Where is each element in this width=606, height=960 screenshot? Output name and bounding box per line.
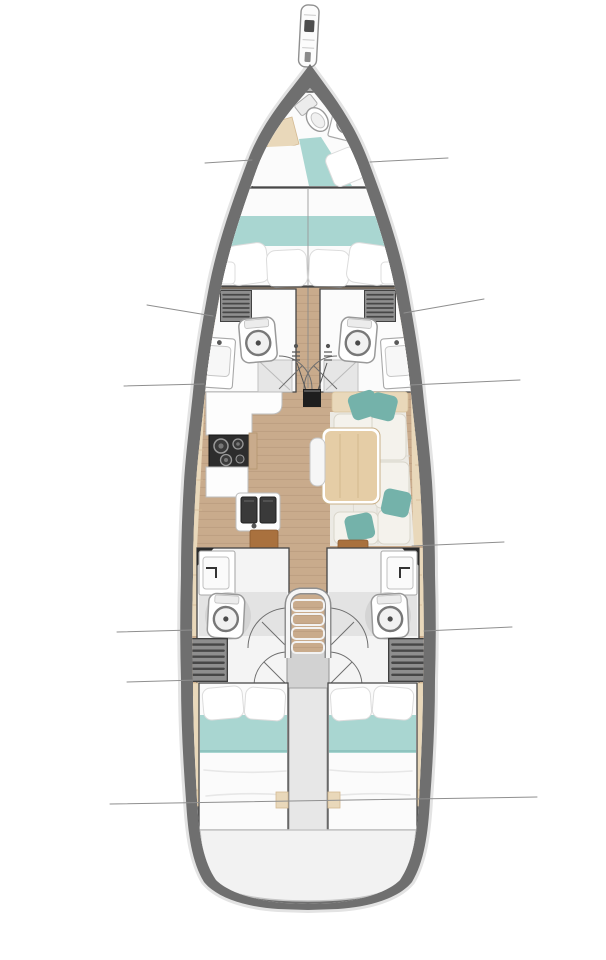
louvered-locker [220,290,251,321]
salon-table [322,428,380,504]
toilet [338,317,378,364]
toilet [238,317,278,364]
louvered-locker [364,290,395,321]
bowsprit [298,5,319,68]
port-aft-cabin [186,683,288,830]
starboard-aft-cabin [328,683,430,830]
deck-plan-page [0,0,606,960]
swim-platform [200,830,416,901]
toilet [207,593,245,639]
wash-basin [199,551,235,595]
deck-plan [0,0,606,960]
aisle-stool [310,438,325,486]
cockpit-column [289,688,327,832]
anchor-fitting [304,20,315,33]
wash-basin [381,551,417,595]
mast-foot [303,389,321,407]
toilet [371,593,409,639]
double-sink [236,493,280,531]
engine-hatch [287,648,329,694]
